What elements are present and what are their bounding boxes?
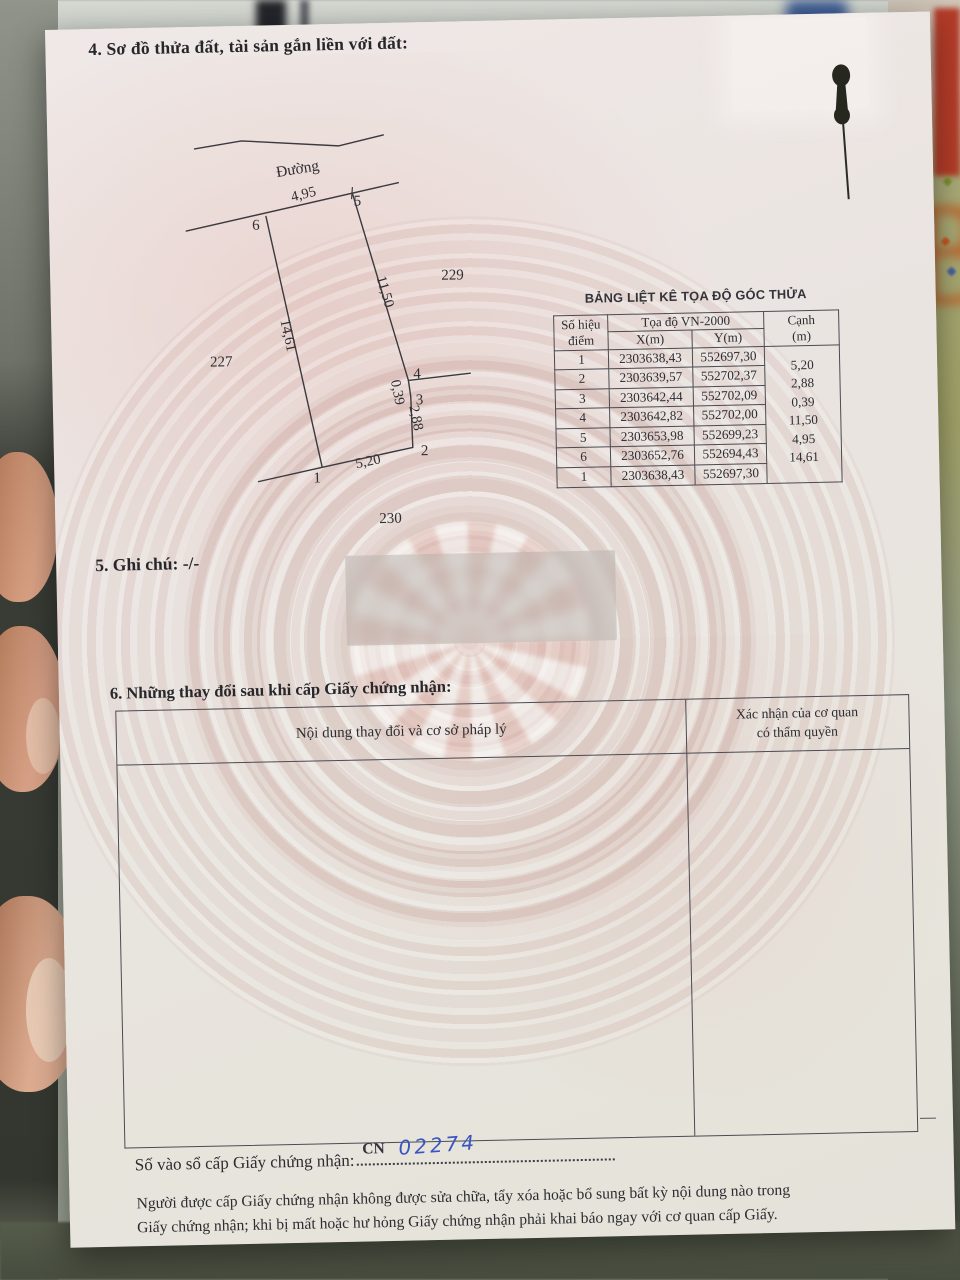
certificate-page: 4. Sơ đồ thửa đất, tài sản gắn liền với … [45,11,955,1247]
point-3: 3 [416,392,424,408]
changes-col1-header: Nội dung thay đổi và cơ sở pháp lý [117,718,686,747]
changes-table: Nội dung thay đổi và cơ sở pháp lý Xác n… [115,694,918,1149]
col-point-header: Số hiệuđiểm [554,315,609,351]
fingernail [26,698,60,774]
privacy-blur-patch [345,550,617,646]
pin-icon [816,53,879,204]
changes-col2-header: Xác nhận của cơ quancó thẩm quyền [685,702,909,744]
registry-label: Số vào sổ cấp Giấy chứng nhận: [135,1151,355,1175]
col-x-header: X(m) [608,330,692,349]
edge-dash-mark [920,1118,936,1119]
background-red-strip [934,8,960,176]
col-y-header: Y(m) [692,329,764,348]
changes-table-header-line [117,748,909,766]
point-6: 6 [252,218,260,234]
registry-prefix: CN [362,1140,385,1158]
dotted-leader: CN02274 [356,1144,614,1165]
changes-table-divider [685,700,695,1136]
neighbor-bottom: 230 [379,511,402,527]
coord-table: Số hiệuđiểm Tọa độ VN-2000 Cạnh(m) X(m) … [553,309,843,488]
edge-values: 5,20 2,88 0,39 11,50 4,95 14,61 [764,344,842,483]
neighbor-left: 227 [210,354,233,370]
edge-4-3 [408,380,410,396]
point-1: 1 [313,470,321,486]
footer-warning: Người được cấp Giấy chứng nhận không đượ… [136,1176,927,1241]
neighbor-right: 229 [441,267,464,283]
col-edge-header: Cạnh(m) [764,310,840,346]
length-2-1: 5,20 [354,451,382,472]
point-2: 2 [421,443,429,459]
section5-note: 5. Ghi chú: -/- [95,553,199,576]
point-5: 5 [353,193,361,209]
registry-number-line: Số vào sổ cấp Giấy chứng nhận:CN02274 [135,1144,615,1175]
road-label: Đường [275,157,321,181]
length-5-4: 11,50 [373,274,397,309]
registry-number-handwritten: 02274 [397,1130,477,1160]
point-4: 4 [413,366,421,382]
length-4-3: 0,39 [387,378,408,406]
road-upper-edge [194,135,383,149]
length-1-6: 14,61 [276,318,299,353]
